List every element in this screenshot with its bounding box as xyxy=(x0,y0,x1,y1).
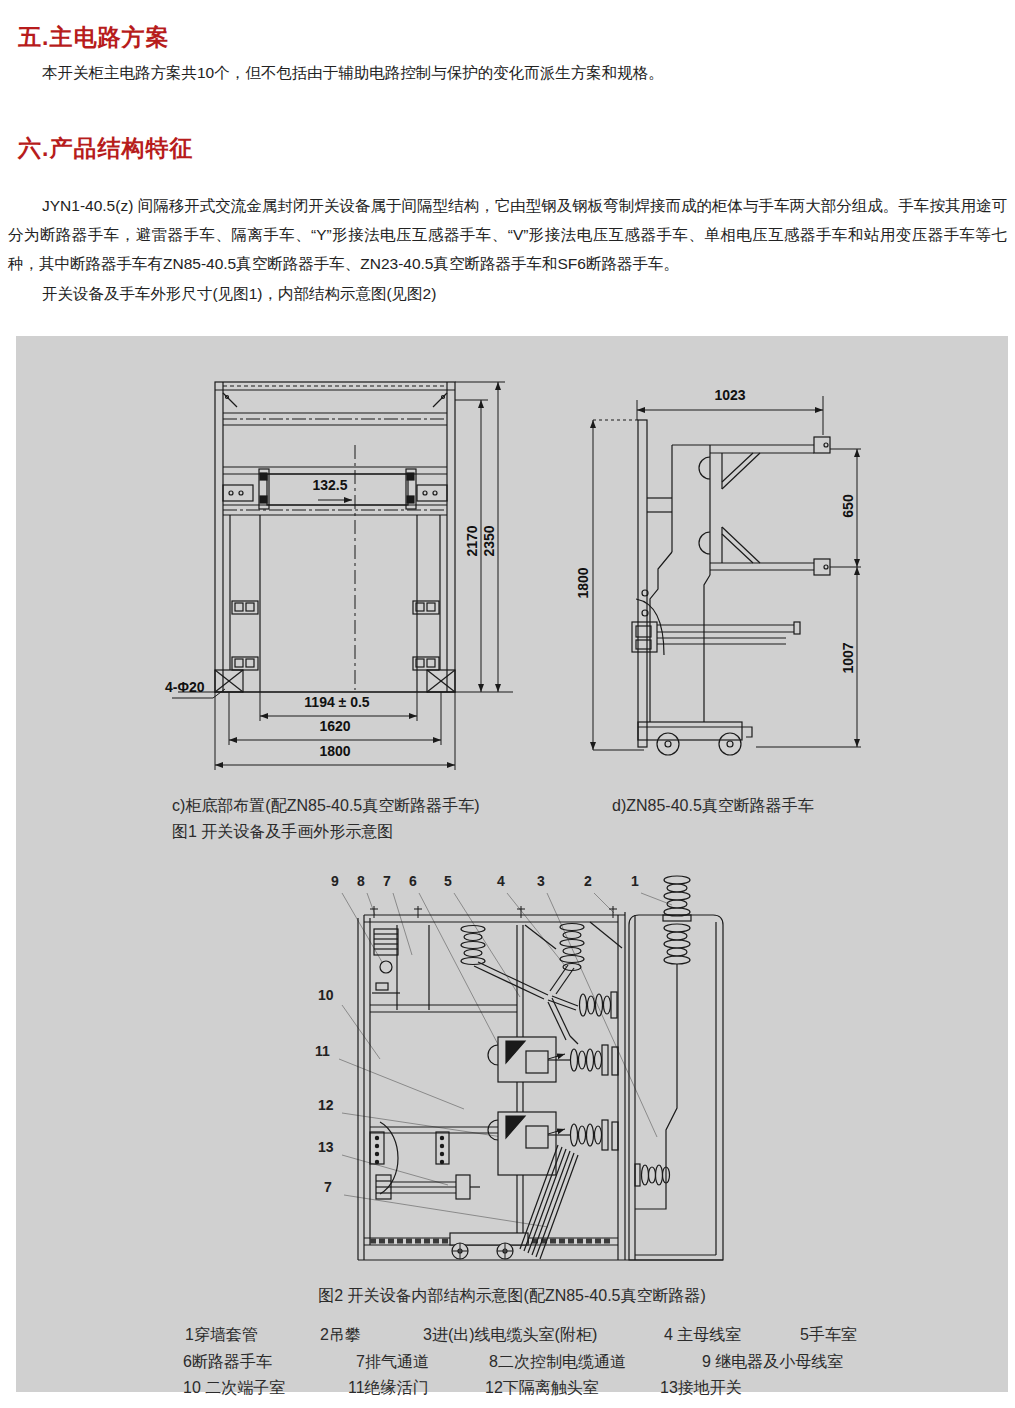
callout-7: 7 xyxy=(383,873,391,889)
dim-label-132-5: 132.5 xyxy=(295,477,365,493)
legend-item-13: 13接地开关 xyxy=(660,1378,742,1399)
dim-label-1800-front: 1800 xyxy=(295,743,375,759)
callout-5: 5 xyxy=(444,873,452,889)
callout-3: 3 xyxy=(537,873,545,889)
legend-item-2: 2吊攀 xyxy=(320,1325,361,1346)
callout-12: 12 xyxy=(318,1097,334,1113)
legend-item-5: 5手车室 xyxy=(800,1325,857,1346)
section-5-paragraph: 本开关柜主电路方案共10个，但不包括由于辅助电路控制与保护的变化而派生方案和规格… xyxy=(8,58,1007,87)
dim-label-1194: 1194 ± 0.5 xyxy=(272,694,402,710)
legend-item-8: 8二次控制电缆通道 xyxy=(489,1352,626,1373)
document-page: 五.主电路方案 本开关柜主电路方案共10个，但不包括由于辅助电路控制与保护的变化… xyxy=(0,0,1015,1408)
figure1-caption-d: d)ZN85-40.5真空断路器手车 xyxy=(612,796,814,817)
callout-13: 13 xyxy=(318,1139,334,1155)
legend-item-7: 7排气通道 xyxy=(356,1352,429,1373)
legend-item-6: 6断路器手车 xyxy=(183,1352,272,1373)
legend-item-4: 4 主母线室 xyxy=(664,1325,741,1346)
section-6-paragraph-2: 开关设备及手车外形尺寸(见图1)，内部结构示意图(见图2) xyxy=(8,279,1007,308)
dim-label-1007: 1007 xyxy=(840,628,856,688)
callout-7b: 7 xyxy=(324,1179,332,1195)
callout-10: 10 xyxy=(318,987,334,1003)
legend-item-11: 11绝缘活门 xyxy=(348,1378,429,1399)
dim-label-2170: 2170 xyxy=(464,511,480,571)
dim-label-1620: 1620 xyxy=(295,718,375,734)
callout-9: 9 xyxy=(331,873,339,889)
dim-label-650: 650 xyxy=(840,476,856,536)
dim-label-2350: 2350 xyxy=(481,511,497,571)
figure1-caption: 图1 开关设备及手画外形示意图 xyxy=(172,822,393,843)
section-5-heading: 五.主电路方案 xyxy=(18,22,169,53)
legend-item-9: 9 继电器及小母线室 xyxy=(702,1352,843,1373)
callout-2: 2 xyxy=(584,873,592,889)
legend-item-1: 1穿墙套管 xyxy=(185,1325,258,1346)
section-6-heading: 六.产品结构特征 xyxy=(18,133,193,164)
callout-6: 6 xyxy=(409,873,417,889)
figure2-caption: 图2 开关设备内部结构示意图(配ZN85-40.5真空断路器) xyxy=(16,1286,1008,1307)
dim-label-1800-side: 1800 xyxy=(575,553,591,613)
callout-8: 8 xyxy=(357,873,365,889)
legend-item-12: 12下隔离触头室 xyxy=(485,1378,599,1399)
dim-label-holes: 4-Φ20 xyxy=(165,679,225,695)
legend-item-10: 10 二次端子室 xyxy=(183,1378,285,1399)
figure-panel xyxy=(16,336,1008,1392)
callout-1: 1 xyxy=(631,873,639,889)
figure1-caption-c: c)柜底部布置(配ZN85-40.5真空断路器手车) xyxy=(172,796,480,817)
dim-label-1023: 1023 xyxy=(690,387,770,403)
callout-4: 4 xyxy=(497,873,505,889)
callout-11: 11 xyxy=(315,1043,330,1059)
section-6-paragraph: JYN1-40.5(z) 间隔移开式交流金属封闭开关设备属于间隔型结构，它由型钢… xyxy=(8,191,1007,278)
legend-item-3: 3进(出)线电缆头室(附柜) xyxy=(423,1325,597,1346)
